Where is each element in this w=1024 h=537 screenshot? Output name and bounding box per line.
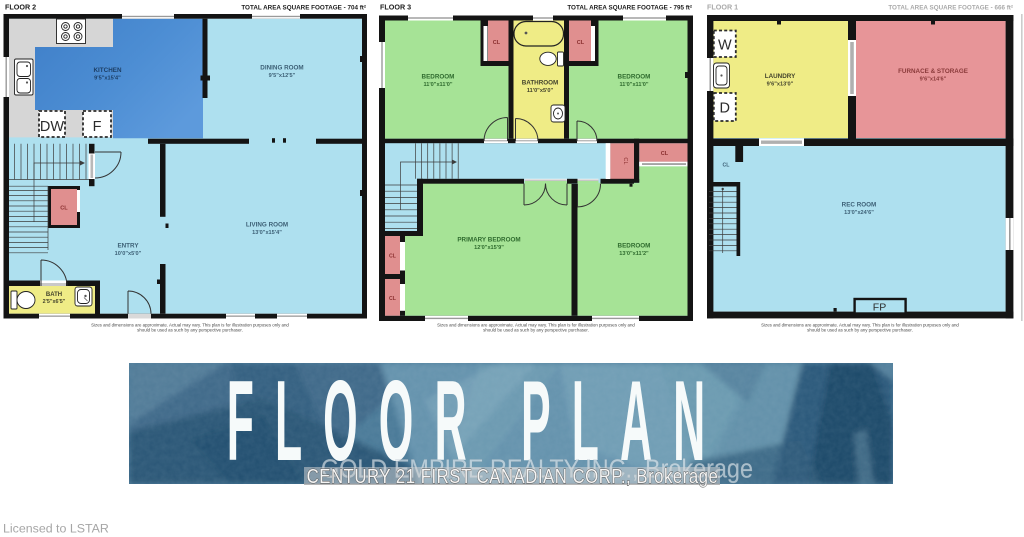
- svg-text:11'0"x11'0": 11'0"x11'0": [423, 82, 452, 88]
- svg-text:9'5"x12'5": 9'5"x12'5": [269, 73, 296, 79]
- svg-text:TOTAL AREA SQUARE FOOTAGE - 79: TOTAL AREA SQUARE FOOTAGE - 795 ft²: [567, 5, 692, 12]
- svg-text:CL: CL: [661, 151, 669, 157]
- svg-text:Licensed to LSTAR: Licensed to LSTAR: [3, 522, 109, 536]
- svg-text:CL: CL: [723, 163, 731, 169]
- svg-text:CL: CL: [389, 296, 397, 302]
- svg-text:KITCHEN: KITCHEN: [94, 67, 122, 74]
- svg-text:12'0"x15'9": 12'0"x15'9": [474, 245, 504, 251]
- svg-text:LIVING ROOM: LIVING ROOM: [246, 222, 288, 229]
- svg-text:10'0"x5'0": 10'0"x5'0": [115, 251, 142, 257]
- svg-text:9'6"x13'0": 9'6"x13'0": [767, 82, 794, 88]
- svg-text:CL: CL: [577, 40, 585, 46]
- svg-text:BATHROOM: BATHROOM: [522, 80, 559, 87]
- svg-text:TOTAL AREA SQUARE FOOTAGE - 66: TOTAL AREA SQUARE FOOTAGE - 666 ft²: [888, 5, 1013, 12]
- svg-text:FURNACE & STORAGE: FURNACE & STORAGE: [898, 68, 968, 75]
- svg-text:9'5"x15'4": 9'5"x15'4": [94, 76, 121, 82]
- svg-text:13'0"x24'6": 13'0"x24'6": [844, 210, 874, 216]
- svg-text:TOTAL AREA SQUARE FOOTAGE - 70: TOTAL AREA SQUARE FOOTAGE - 704 ft²: [241, 5, 366, 12]
- svg-text:should be used as such by any: should be used as such by any perspectiv…: [483, 328, 589, 333]
- svg-text:CL: CL: [622, 157, 628, 164]
- svg-text:FLOOR 2: FLOOR 2: [5, 3, 36, 12]
- svg-text:BEDROOM: BEDROOM: [618, 243, 651, 250]
- svg-text:CL: CL: [389, 254, 397, 260]
- svg-text:13'0"x15'4": 13'0"x15'4": [252, 230, 282, 236]
- svg-text:CENTURY 21 FIRST CANADIAN CORP: CENTURY 21 FIRST CANADIAN CORP., Brokera…: [307, 465, 719, 488]
- svg-text:CL: CL: [60, 206, 68, 212]
- svg-text:CL: CL: [493, 40, 501, 46]
- svg-text:should be used as such by any: should be used as such by any perspectiv…: [137, 328, 243, 333]
- svg-text:PRIMARY BEDROOM: PRIMARY BEDROOM: [457, 237, 520, 244]
- svg-text:2'5"x6'5": 2'5"x6'5": [43, 299, 66, 305]
- svg-text:9'6"x14'6": 9'6"x14'6": [920, 77, 947, 83]
- svg-text:FP: FP: [873, 302, 886, 314]
- svg-text:W: W: [718, 38, 732, 54]
- svg-text:11'0"x11'0": 11'0"x11'0": [619, 82, 648, 88]
- svg-text:DW: DW: [40, 119, 64, 135]
- svg-text:ENTRY: ENTRY: [117, 243, 139, 250]
- svg-text:FLOOR 1: FLOOR 1: [707, 3, 738, 12]
- svg-text:F: F: [93, 119, 102, 135]
- svg-text:BEDROOM: BEDROOM: [422, 74, 455, 81]
- svg-text:D: D: [720, 101, 730, 117]
- svg-text:BEDROOM: BEDROOM: [618, 74, 651, 81]
- svg-text:13'0"x11'2": 13'0"x11'2": [619, 251, 649, 257]
- svg-text:DINING ROOM: DINING ROOM: [260, 65, 303, 72]
- svg-text:BATH: BATH: [46, 292, 62, 298]
- svg-text:11'0"x5'0": 11'0"x5'0": [527, 88, 554, 94]
- svg-text:LAUNDRY: LAUNDRY: [765, 73, 796, 80]
- svg-text:FLOOR 3: FLOOR 3: [380, 3, 411, 12]
- svg-text:should be used as such by any: should be used as such by any perspectiv…: [807, 328, 913, 333]
- svg-text:REC ROOM: REC ROOM: [842, 202, 877, 209]
